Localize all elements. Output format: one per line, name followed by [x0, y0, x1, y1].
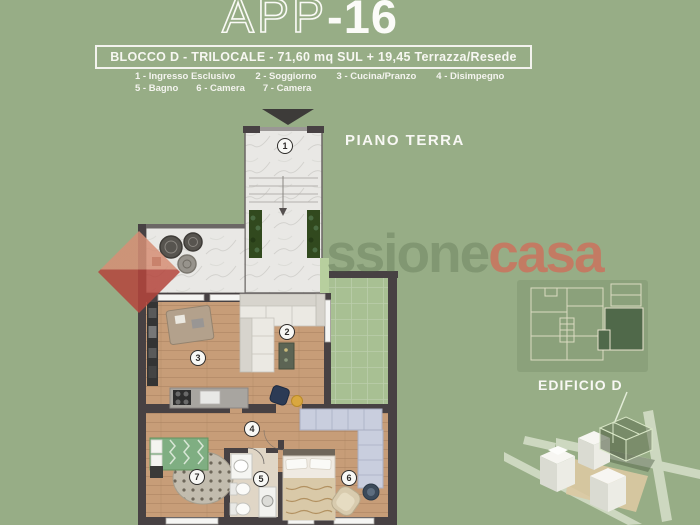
title-prefix: APP	[222, 0, 327, 40]
site-plan-thumbnail	[517, 280, 648, 372]
legend-item: 1 - Ingresso Esclusivo	[135, 71, 235, 82]
room-badge-3: 3	[190, 350, 206, 366]
room-badge-7: 7	[189, 469, 205, 485]
legend-item: 5 - Bagno	[135, 83, 178, 94]
bed-6	[283, 449, 335, 520]
title-suffix: -16	[327, 0, 398, 40]
highlighted-unit	[598, 308, 643, 350]
bed-7	[150, 438, 208, 470]
floorplan-page: APP-16 BLOCCO D - TRILOCALE - 71,60 mq S…	[0, 0, 700, 525]
legend-item: 6 - Camera	[196, 83, 245, 94]
building-white-3	[590, 468, 626, 512]
floor-label: PIANO TERRA	[345, 132, 465, 149]
stool	[292, 396, 303, 407]
site-3d-render	[504, 410, 700, 525]
dining-table	[166, 305, 214, 345]
entrance-arrow-icon	[262, 109, 314, 125]
subtitle-box: BLOCCO D - TRILOCALE - 71,60 mq SUL + 19…	[95, 45, 532, 69]
watermark-text: ssionecasa	[326, 224, 603, 282]
room-badge-2: 2	[279, 324, 295, 340]
building-label: EDIFICIO D	[538, 377, 623, 393]
washer	[259, 487, 276, 517]
watermark-accent-text: casa	[488, 222, 602, 284]
subtitle-text: BLOCCO D - TRILOCALE - 71,60 mq SUL + 19…	[110, 50, 517, 64]
terrace-chair	[184, 233, 202, 251]
legend-item: 4 - Disimpegno	[436, 71, 504, 82]
building-white-1	[540, 446, 575, 492]
page-title: APP-16	[0, 0, 700, 40]
bidet	[230, 503, 250, 515]
legend-item: 2 - Soggiorno	[255, 71, 316, 82]
room-badge-6: 6	[341, 470, 357, 486]
legend-item: 7 - Camera	[263, 83, 312, 94]
room-badge-4: 4	[244, 421, 260, 437]
cabinet	[150, 466, 163, 478]
toilet	[230, 483, 250, 495]
planter-right	[307, 210, 320, 258]
terrace-table	[178, 255, 196, 273]
legend-item: 3 - Cucina/Pranzo	[337, 71, 417, 82]
planter-left	[249, 210, 262, 258]
room-legend: 1 - Ingresso Esclusivo 2 - Soggiorno 3 -…	[135, 71, 524, 94]
tv-cabinet	[279, 343, 294, 369]
room-badge-1: 1	[277, 138, 293, 154]
room-badge-5: 5	[253, 471, 269, 487]
watermark-faint-text: ssione	[326, 222, 488, 284]
